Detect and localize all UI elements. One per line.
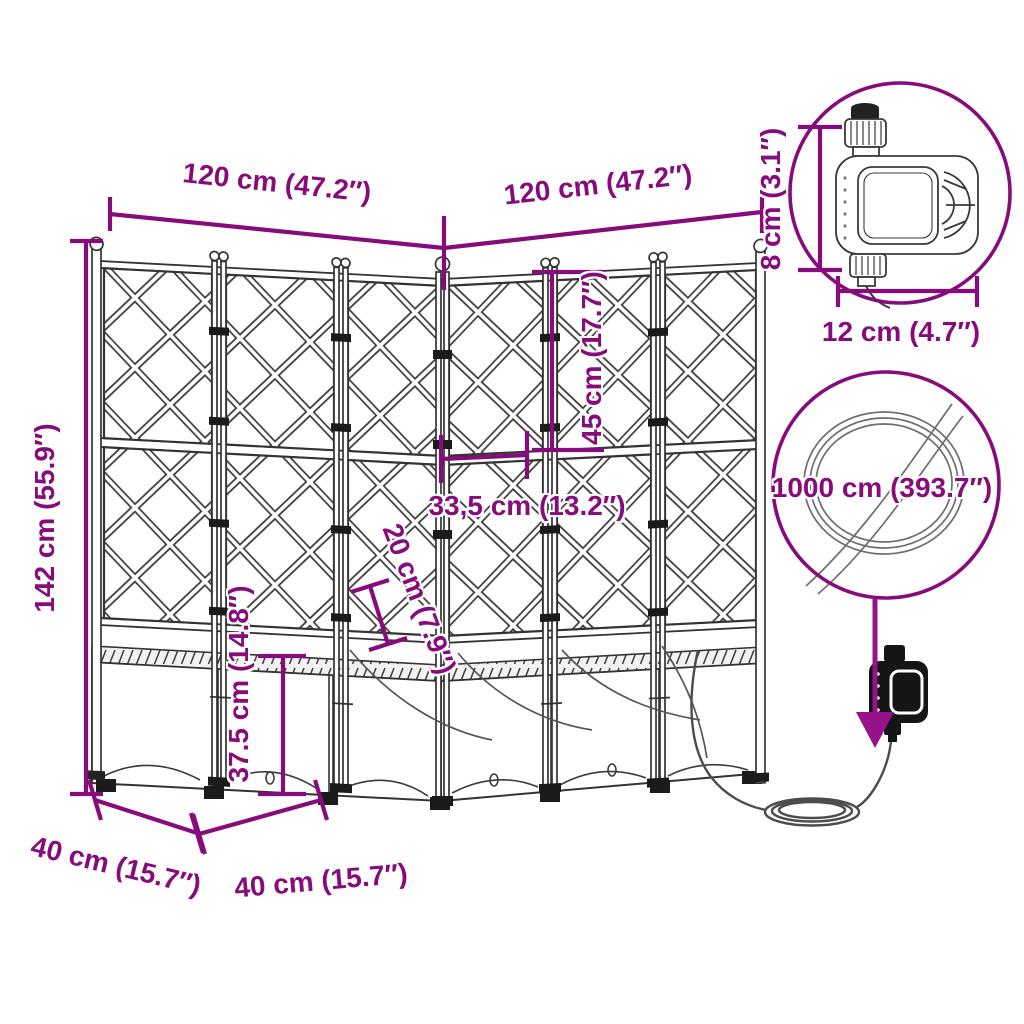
planter-dimension-diagram: 120 cm (47.2″) 120 cm (47.2″) 142 cm (55… [0,0,1024,1024]
dim-label-timer-width: 12 cm (4.7″) [822,318,980,346]
dim-label-corner-width: 33,5 cm (13.2″) [428,492,625,520]
dim-label-timer-height: 8 cm (3.1″) [757,128,785,271]
dim-label-height: 142 cm (55.9″) [31,423,59,612]
dim-label-box-height: 37.5 cm (14.8″) [225,585,253,782]
water-timer-icon [836,103,978,308]
dim-label-hose-length: 1000 cm (393.7″) [772,474,992,502]
dim-label-upper-trellis: 45 cm (17.7″) [578,271,606,445]
